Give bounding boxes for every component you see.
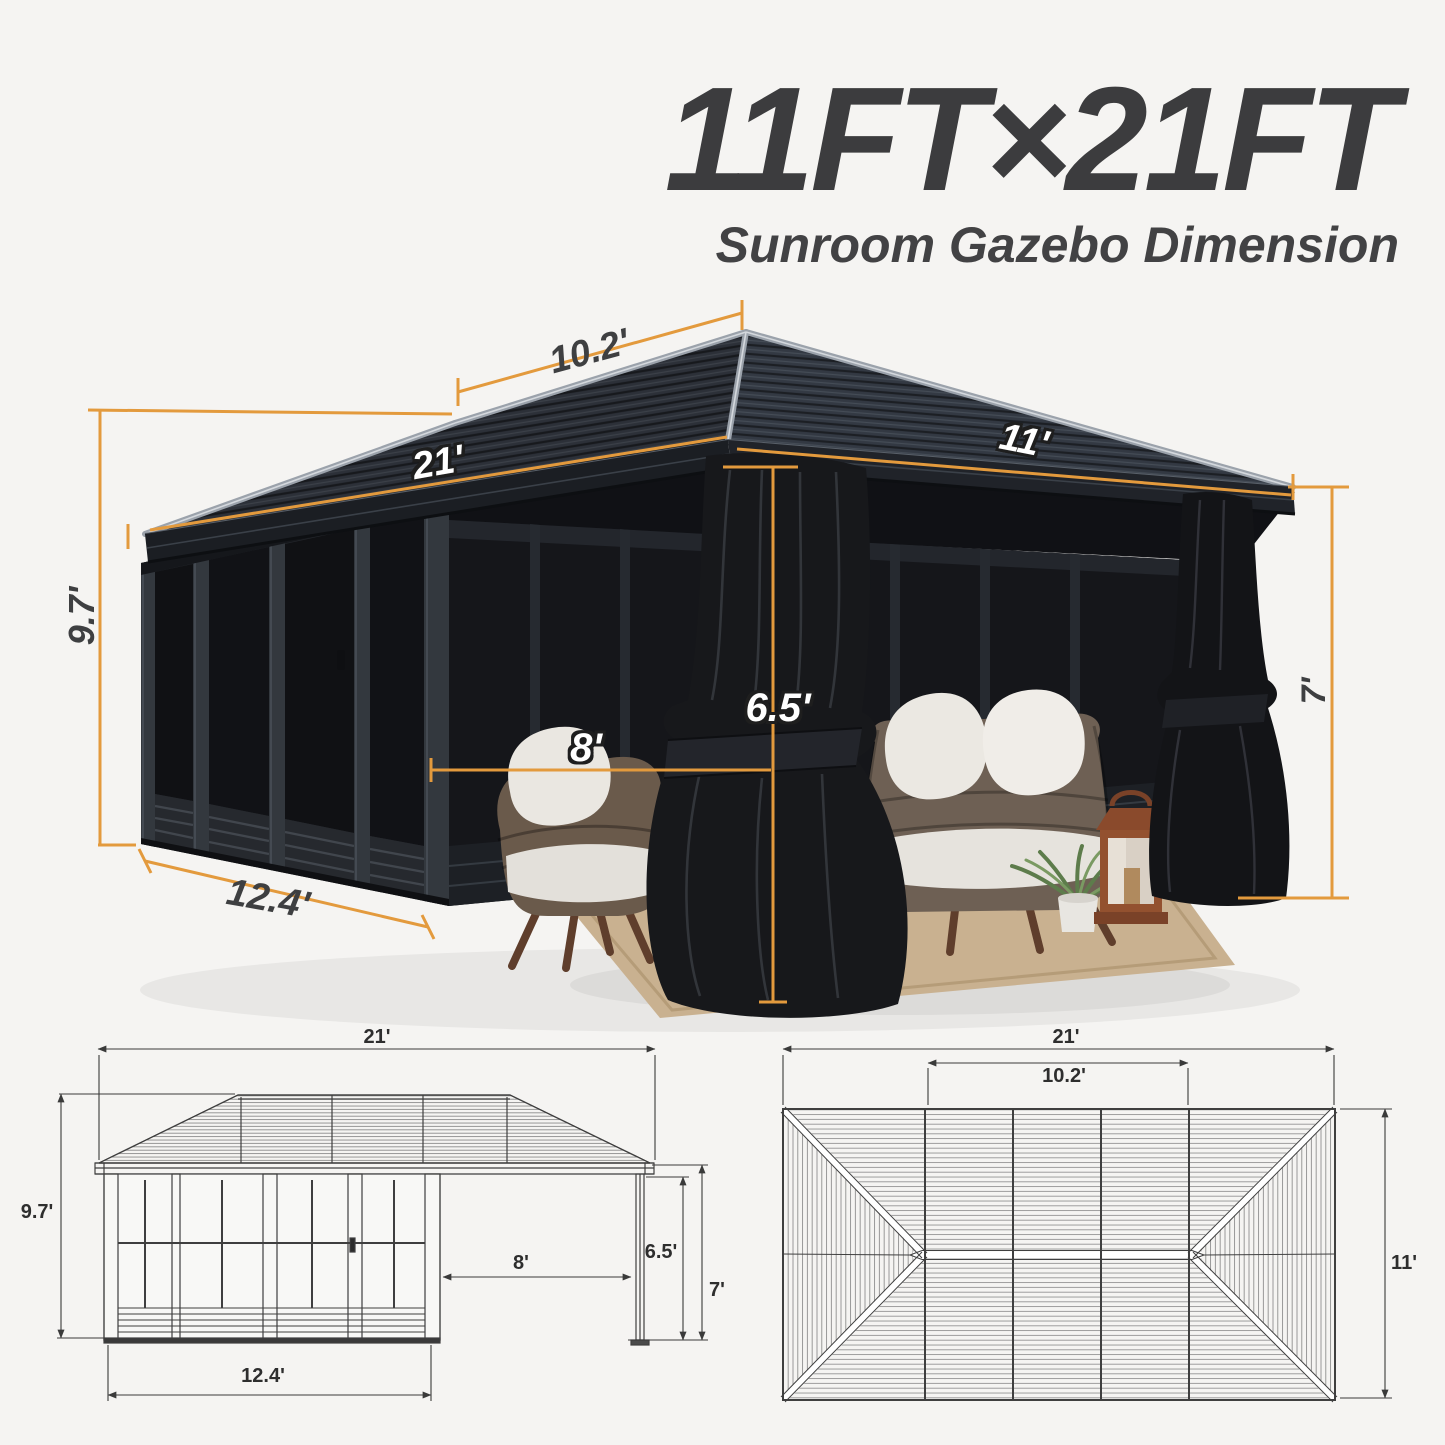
elevation-dim-sunroom-width: 12.4' — [241, 1366, 285, 1386]
plan-dim-length: 21' — [1052, 1027, 1079, 1047]
gazebo-photo-illustration — [88, 300, 1349, 1032]
elevation-dim-opening-width: 8' — [513, 1253, 529, 1273]
elevation-drawing — [57, 1049, 708, 1401]
elevation-dim-opening-height: 6.5' — [645, 1242, 678, 1262]
photo-dim-width: 11' — [997, 418, 1052, 465]
sunroom-front-wall — [141, 497, 449, 906]
gazebo-dimension-sheet: 11FT×21FT Sunroom Gazebo Dimension 10.2'… — [0, 0, 1445, 1445]
page-subtitle: Sunroom Gazebo Dimension — [716, 220, 1399, 270]
photo-dim-opening-width: 8' — [570, 728, 602, 768]
photo-dim-height: 9.7' — [64, 587, 100, 646]
elevation-dim-post-height: 7' — [709, 1280, 725, 1300]
elevation-dim-height: 9.7' — [21, 1202, 54, 1222]
elevation-dim-length: 21' — [363, 1027, 390, 1047]
photo-dim-length: 21' — [409, 440, 466, 486]
page-title: 11FT×21FT — [665, 66, 1395, 214]
plan-dim-width: 11' — [1391, 1253, 1417, 1273]
photo-dim-post-height: 7' — [1297, 678, 1331, 705]
roof-plan-drawing — [781, 1049, 1392, 1402]
photo-dim-opening-height: 6.5' — [745, 688, 810, 728]
plan-dim-ridge: 10.2' — [1042, 1066, 1086, 1086]
